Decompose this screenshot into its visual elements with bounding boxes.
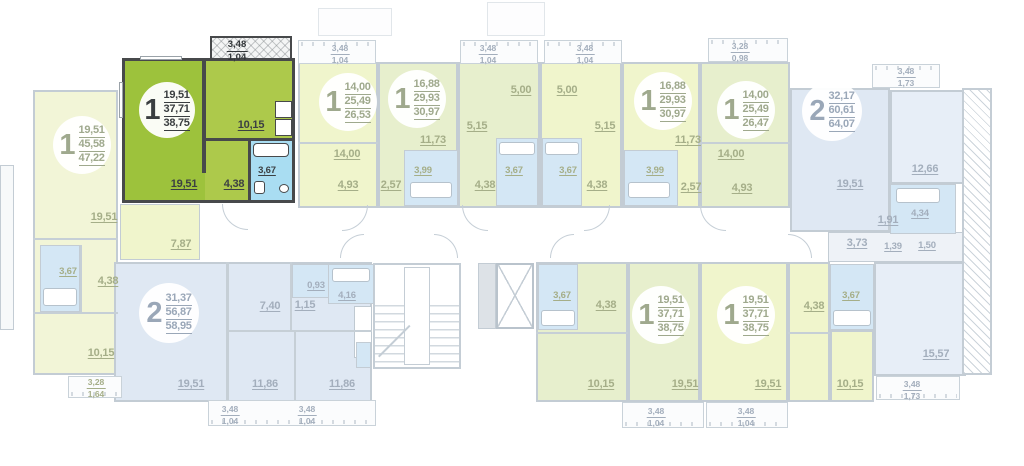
unit-area-value: 14,00 (345, 81, 371, 95)
room-area-label: 11,73 (420, 134, 446, 146)
wall (33, 312, 118, 314)
unit-room-count: 2 (146, 299, 162, 328)
wall (700, 142, 790, 144)
room-area-label: 3,67 (842, 290, 860, 301)
unit-badge-a10[interactable]: 119,5137,7138,75 (717, 286, 775, 344)
unit-area-value: 14,00 (743, 89, 769, 103)
bathtub-icon (253, 143, 289, 157)
wall (248, 141, 251, 200)
bathtub-icon (896, 188, 940, 203)
room-area-label: 19,51 (672, 378, 699, 390)
balcony-size-label: 3,481,04 (331, 43, 350, 65)
room-area-label: 11,86 (252, 378, 278, 390)
unit-badge-a7[interactable]: 232,1760,6164,07 (802, 81, 862, 141)
room-area-label: 7,87 (171, 238, 192, 250)
unit-room-count: 1 (394, 85, 410, 114)
door-arc (462, 205, 488, 231)
unit-area-value: 38,75 (164, 117, 190, 131)
unit-badge-a4[interactable]: 116,8829,9330,97 (388, 70, 446, 128)
hallway-787 (120, 204, 200, 260)
bathtub-icon (332, 268, 370, 282)
unit-area-value: 45,58 (79, 138, 105, 152)
door-arc (584, 205, 610, 231)
unit-area-value: 31,37 (166, 292, 192, 306)
wall (226, 330, 372, 332)
highlighted-hall (205, 141, 251, 200)
apartment-a10-kitchen (830, 330, 874, 402)
bathtub-icon (628, 182, 670, 198)
unit-area-value: 19,51 (743, 294, 769, 308)
balcony-size-label: 3,481,04 (298, 404, 317, 426)
window (119, 82, 123, 118)
upper-balcony-outline (318, 8, 392, 36)
room-area-label: 2,57 (381, 179, 402, 191)
bathtub-icon (499, 142, 535, 155)
unit-area-value: 29,93 (414, 92, 440, 106)
door-arc (342, 205, 368, 231)
unit-area-value: 29,93 (660, 94, 686, 108)
room-area-label: 19,51 (755, 378, 782, 390)
door-arc (788, 234, 812, 258)
room-area-label: 19,51 (171, 178, 198, 190)
balcony-size-label: 3,481,04 (737, 406, 756, 428)
unit-room-count: 1 (723, 301, 739, 330)
room-area-label: 11,73 (675, 134, 701, 146)
bathtub-icon (541, 310, 575, 326)
sink-icon (279, 184, 289, 193)
unit-area-value: 25,49 (743, 103, 769, 117)
left-edge-structure (0, 165, 14, 330)
room-area-label: 14,00 (334, 148, 361, 160)
wall (298, 142, 378, 144)
unit-badge-a3[interactable]: 114,0025,4926,53 (319, 73, 377, 131)
bathtub-icon (43, 288, 77, 306)
unit-area-value: 60,61 (829, 104, 855, 118)
balcony-size-label: 3,280,98 (731, 41, 750, 63)
unit-room-count: 1 (325, 88, 341, 117)
unit-room-count: 2 (809, 97, 825, 126)
wall (202, 61, 206, 173)
wall (788, 332, 830, 334)
balcony-highlighted (210, 36, 292, 60)
unit-area-value: 37,71 (658, 308, 684, 322)
wall (294, 330, 296, 402)
unit-area-value: 19,51 (79, 124, 105, 138)
unit-area-value: 16,88 (414, 78, 440, 92)
window (140, 56, 182, 60)
room-area-label: 7,40 (260, 300, 281, 312)
room-area-label: 5,00 (511, 84, 532, 96)
elevator-shaft (496, 263, 534, 329)
unit-area-value: 30,97 (414, 106, 440, 120)
unit-area-value: 26,53 (345, 109, 371, 123)
small-bath-strip (356, 342, 371, 368)
bathtub-icon (545, 142, 579, 155)
room-area-label: 19,51 (91, 211, 118, 223)
unit-area-value: 38,75 (658, 322, 684, 336)
room-area-label: 1,39 (884, 241, 902, 252)
wall (536, 332, 628, 334)
unit-area-value: 47,22 (79, 152, 105, 166)
unit-room-count: 1 (640, 87, 656, 116)
balcony-size-label: 3,481,04 (647, 406, 666, 428)
unit-room-count: 1 (144, 96, 160, 125)
bathtub-icon (833, 310, 871, 326)
room-area-label: 12,66 (912, 163, 939, 175)
room-area-label: 10,15 (837, 378, 864, 390)
room-area-label: 4,16 (338, 290, 356, 301)
balcony-size-label: 3,481,04 (479, 43, 498, 65)
unit-badge-a8[interactable]: 231,3756,8758,95 (139, 283, 199, 343)
room-area-label: 4,38 (475, 179, 496, 191)
balcony-size-label: 3,481,04 (576, 43, 595, 65)
room-area-label: 3,99 (414, 165, 432, 176)
room-area-label: 10,15 (88, 347, 115, 359)
unit-area-value: 58,95 (166, 320, 192, 334)
wall (80, 245, 82, 312)
room-area-label: 3,67 (559, 165, 577, 176)
balcony (460, 40, 538, 64)
room-area-label: 3,67 (553, 290, 571, 301)
door-arc (550, 234, 574, 258)
unit-room-count: 1 (59, 131, 75, 160)
room-area-label: 1,91 (878, 214, 899, 226)
unit-badge-highlighted[interactable]: 119,5137,7138,75 (139, 82, 195, 138)
fridge-icon (275, 119, 292, 136)
room-area-label: 3,73 (847, 237, 868, 249)
door-arc (700, 205, 726, 231)
room-area-label: 4,38 (587, 179, 608, 191)
unit-area-value: 38,75 (743, 322, 769, 336)
room-area-label: 4,93 (732, 182, 753, 194)
unit-badge-a9[interactable]: 119,5137,7138,75 (632, 286, 690, 344)
ventilation-shaft (962, 88, 992, 375)
room-area-label: 10,15 (238, 119, 265, 131)
door-arc (434, 234, 458, 258)
unit-badge-a5[interactable]: 116,8829,9330,97 (634, 72, 692, 130)
unit-room-count: 1 (638, 301, 654, 330)
room-area-label: 14,00 (718, 148, 745, 160)
room-area-label: 3,67 (59, 266, 77, 277)
unit-badge-left[interactable]: 119,5145,5847,22 (53, 116, 111, 174)
room-area-label: 3,99 (646, 165, 664, 176)
room-area-label: 10,15 (588, 378, 615, 390)
wall (226, 262, 229, 402)
toilet-icon (254, 181, 265, 194)
door-arc (340, 234, 364, 258)
room-area-label: 5,15 (467, 120, 488, 132)
wall-block (478, 263, 496, 329)
balcony-size-label: 3,281,64 (87, 377, 106, 399)
room-area-label: 1,15 (295, 299, 316, 311)
room-area-label: 19,51 (178, 378, 205, 390)
a7-kitchen-1557 (874, 262, 966, 376)
room-area-label: 3,67 (258, 165, 276, 176)
room-area-label: 2,57 (681, 181, 702, 193)
room-area-label: 0,93 (307, 280, 325, 291)
stove-icon (275, 101, 292, 118)
unit-room-count: 1 (723, 96, 739, 125)
room-area-label: 4,38 (596, 299, 617, 311)
room-area-label: 5,15 (595, 120, 616, 132)
unit-area-value: 25,49 (345, 95, 371, 109)
balcony-size-label: 3,481,04 (227, 39, 248, 64)
room-area-label: 1,50 (918, 240, 936, 251)
unit-area-value: 64,07 (829, 118, 855, 132)
staircase-landing (404, 267, 430, 365)
room-area-label: 4,38 (98, 275, 119, 287)
room-area-label: 15,57 (923, 348, 950, 360)
unit-area-value: 37,71 (743, 308, 769, 322)
door-arc (222, 204, 248, 230)
unit-area-value: 56,87 (166, 306, 192, 320)
room-area-label: 3,67 (505, 165, 523, 176)
unit-area-value: 16,88 (660, 80, 686, 94)
balcony-size-label: 3,481,04 (221, 404, 240, 426)
unit-area-value: 37,71 (164, 103, 190, 117)
bathtub-icon (410, 182, 452, 198)
room-area-label: 4,38 (224, 178, 245, 190)
unit-badge-a6[interactable]: 114,0025,4926,47 (717, 81, 775, 139)
wall (290, 262, 292, 330)
unit-area-value: 32,17 (829, 90, 855, 104)
balcony-size-label: 3,481,73 (897, 66, 916, 88)
wall (33, 238, 118, 240)
floor-plan: 19,5110,154,383,6719,513,674,3810,1514,0… (0, 0, 1024, 466)
room-area-label: 4,93 (338, 179, 359, 191)
unit-area-value: 19,51 (658, 294, 684, 308)
room-area-label: 5,00 (557, 84, 578, 96)
room-area-label: 11,86 (329, 378, 355, 390)
room-area-label: 19,51 (837, 178, 864, 190)
room-area-label: 4,34 (911, 208, 929, 219)
room-area-label: 4,38 (804, 300, 825, 312)
unit-area-value: 19,51 (164, 89, 190, 103)
upper-balcony-outline (487, 2, 545, 36)
unit-area-value: 30,97 (660, 108, 686, 122)
unit-area-value: 26,47 (743, 117, 769, 131)
balcony-size-label: 3,481,73 (903, 379, 922, 401)
